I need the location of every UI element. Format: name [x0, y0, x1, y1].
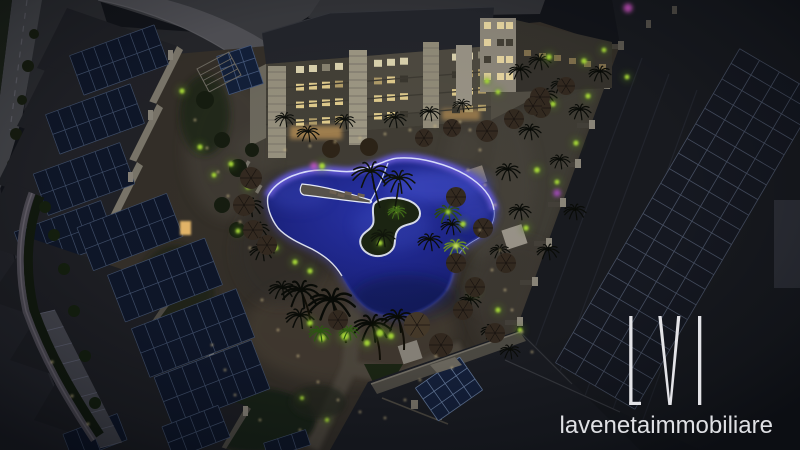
- svg-text:lavenetaimmobiliare: lavenetaimmobiliare: [560, 412, 773, 439]
